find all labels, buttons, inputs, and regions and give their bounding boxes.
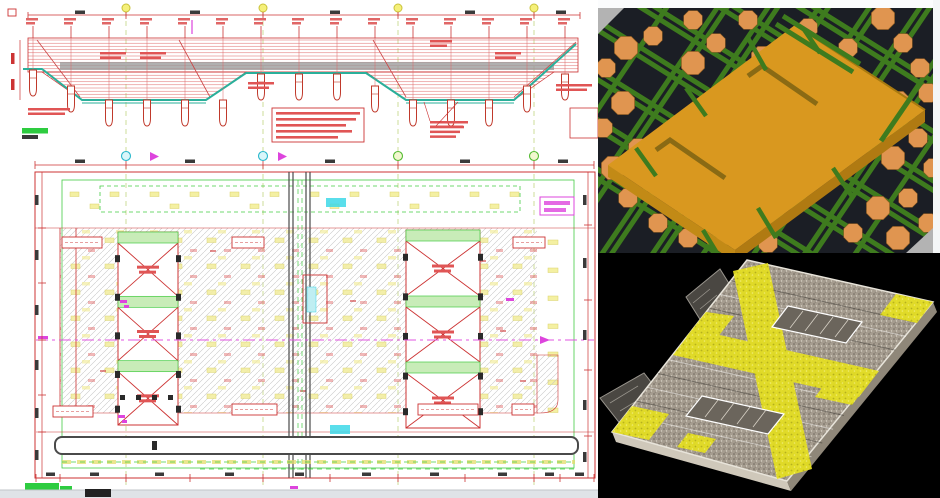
pile-cap-node [739, 11, 758, 30]
section-scale [22, 135, 38, 139]
pile [144, 100, 151, 126]
pile-cap-node [598, 59, 615, 78]
cad-drawing-panel[interactable] [0, 0, 600, 498]
pile [334, 74, 341, 100]
pile [220, 100, 227, 126]
grid-bubble [530, 152, 539, 161]
pile-cap-node [611, 91, 634, 114]
level-label [330, 425, 350, 434]
pile [524, 86, 531, 112]
pile [562, 74, 569, 100]
rebar-3d-panel[interactable] [598, 0, 940, 253]
pile [182, 100, 189, 126]
pile-cap-node [844, 224, 863, 243]
grid-bubble [122, 4, 130, 12]
pile-cap-node [684, 11, 703, 30]
x-brace-column-right [403, 230, 483, 428]
pile [106, 100, 113, 126]
pile-cap-node [894, 34, 913, 53]
pile-cap-node [911, 59, 930, 78]
side-notes-box [570, 108, 598, 138]
pile-cap-node [644, 27, 663, 46]
pile-cap-node [866, 196, 889, 219]
level-label [326, 198, 346, 207]
grade-beam-bar [55, 437, 578, 454]
pile [410, 100, 417, 126]
section-title [22, 128, 48, 134]
pile-cap-node [899, 189, 918, 208]
footer-label [85, 489, 111, 497]
rebar-3d-view [598, 0, 940, 253]
pile [30, 70, 37, 96]
pile [296, 74, 303, 100]
pile-cap-node [614, 36, 637, 59]
pile-cap-node [681, 51, 704, 74]
pile [486, 100, 493, 126]
grid-bubble [394, 152, 403, 161]
grid-bubble [259, 152, 268, 161]
pile-cap-node [886, 226, 909, 249]
formwork-3d-view [598, 253, 940, 498]
grid-bubble [530, 4, 538, 12]
formwork-3d-panel[interactable] [598, 253, 940, 498]
joint-band [60, 62, 554, 70]
pile-cap-node [871, 6, 894, 29]
pile [372, 86, 379, 112]
pile-cap-node [707, 34, 726, 53]
grid-bubble [122, 152, 131, 161]
pile-cap-node [598, 119, 612, 138]
grid-bubble [259, 4, 267, 12]
cad-drawing [0, 0, 600, 498]
screenshot-canvas [0, 0, 940, 498]
pile-cap-node [649, 214, 668, 233]
grid-bubble [394, 4, 402, 12]
